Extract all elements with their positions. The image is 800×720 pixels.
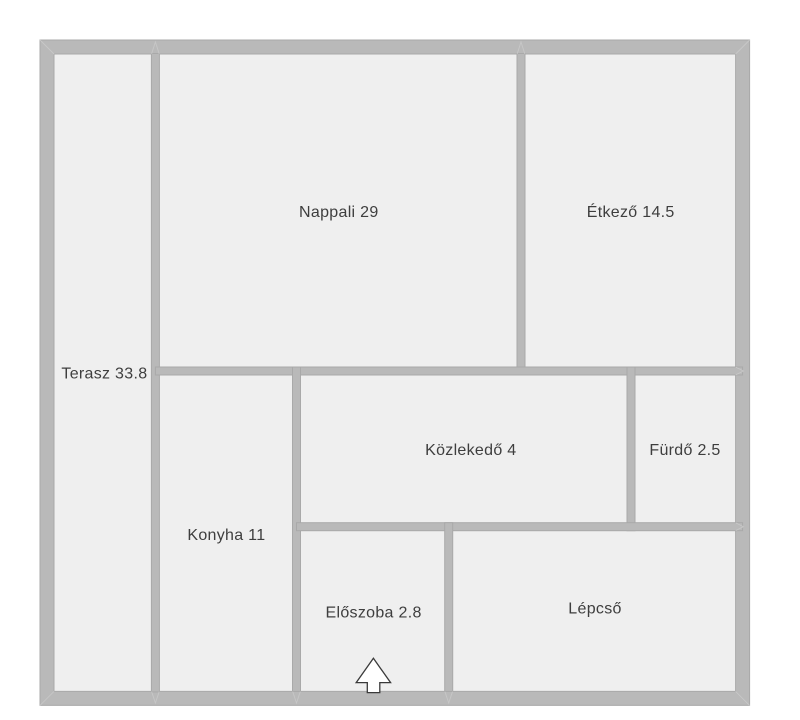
svg-text:Étkező 14.5: Étkező 14.5 [587, 202, 675, 221]
svg-text:Fürdő 2.5: Fürdő 2.5 [649, 442, 720, 459]
svg-text:Terasz 33.8: Terasz 33.8 [61, 366, 147, 383]
svg-text:Közlekedő 4: Közlekedő 4 [425, 442, 516, 459]
svg-text:Lépcső: Lépcső [568, 601, 621, 618]
svg-text:Nappali 29: Nappali 29 [299, 204, 379, 221]
svg-text:Előszoba 2.8: Előszoba 2.8 [326, 605, 422, 622]
svg-text:Konyha 11: Konyha 11 [187, 527, 265, 544]
